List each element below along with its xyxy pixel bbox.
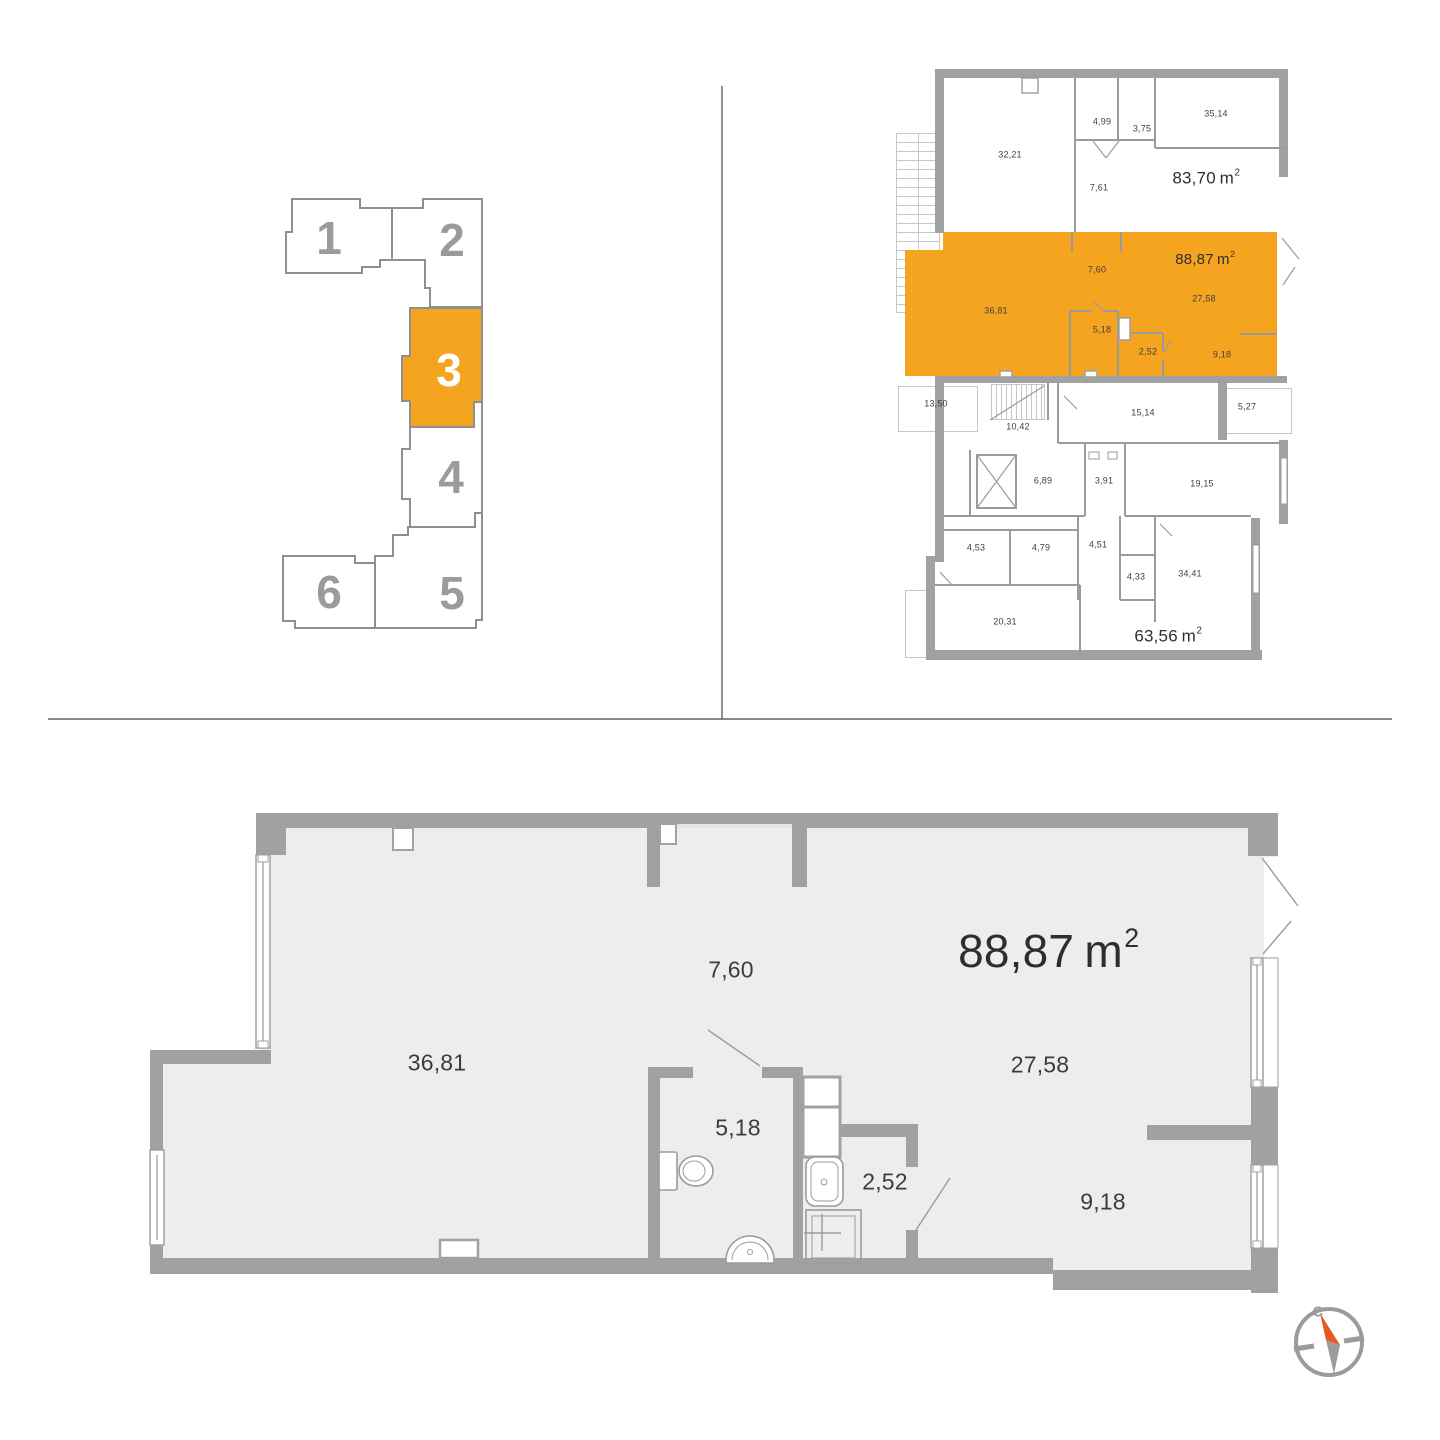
room-area-label: 4,53 [967,544,985,553]
compass-north-label: С [1312,1305,1323,1320]
scheme-unit-2-label: 2 [439,217,465,263]
room-area-label: 4,51 [1089,541,1107,550]
compass [1294,1309,1364,1375]
room-area-label: 5,18 [1093,326,1111,335]
room-area-label: 10,42 [1006,423,1030,432]
overview-plan [905,69,1299,660]
scheme-unit-6-label: 6 [316,569,342,615]
scheme-unit-4-label: 4 [438,454,464,500]
room-area-label: 27,58 [1192,295,1216,304]
room-area-label: 34,41 [1178,570,1202,579]
toilet-tank-icon [659,1152,677,1190]
room-area-label: 19,15 [1190,480,1214,489]
scheme-unit-5-label: 5 [439,570,465,616]
scheme-unit-1-label: 1 [316,215,342,261]
apartment-area-label: 63,56m2 [1134,628,1201,645]
room-area-label: 7,60 [1088,266,1106,275]
room-area-label: 36,81 [984,307,1008,316]
detail-plan [150,813,1298,1293]
toilet-bowl-icon [679,1156,713,1186]
room-area-label: 4,79 [1032,544,1050,553]
floorplan-page: 1 2 3 4 5 6 32,21 4,99 3,75 7,61 35,14 8… [0,0,1440,1440]
room-area-label: 36,81 [408,1052,467,1075]
room-area-label: 7,61 [1090,184,1108,193]
room-area-label: 3,75 [1133,125,1151,134]
room-area-label: 4,99 [1093,118,1111,127]
room-area-label: 5,27 [1238,403,1256,412]
room-area-label: 15,14 [1131,409,1155,418]
apartment-area-label: 83,70m2 [1172,170,1239,187]
washbasin-icon [806,1157,843,1206]
room-area-label: 32,21 [998,151,1022,160]
detail-area-label: 88,87m2 [958,928,1138,974]
scheme-unit-5[interactable] [375,513,482,628]
room-area-label: 5,18 [715,1117,761,1140]
selected-apartment-area-label: 88,87m2 [1175,251,1235,267]
room-area-label: 4,33 [1127,573,1145,582]
scheme-unit-2[interactable] [392,199,482,307]
room-area-label: 20,31 [993,618,1017,627]
room-area-label: 27,58 [1011,1054,1070,1077]
room-area-label: 9,18 [1213,351,1231,360]
room-area-label: 2,52 [862,1171,908,1194]
room-area-label: 35,14 [1204,110,1228,119]
room-area-label: 13,50 [924,400,948,409]
room-area-label: 3,91 [1095,477,1113,486]
room-area-label: 7,60 [708,959,754,982]
scheme-unit-3-label: 3 [436,347,462,393]
room-area-label: 6,89 [1034,477,1052,486]
detail-floor [150,813,1278,1290]
room-area-label: 2,52 [1139,348,1157,357]
room-area-label: 9,18 [1080,1191,1126,1214]
